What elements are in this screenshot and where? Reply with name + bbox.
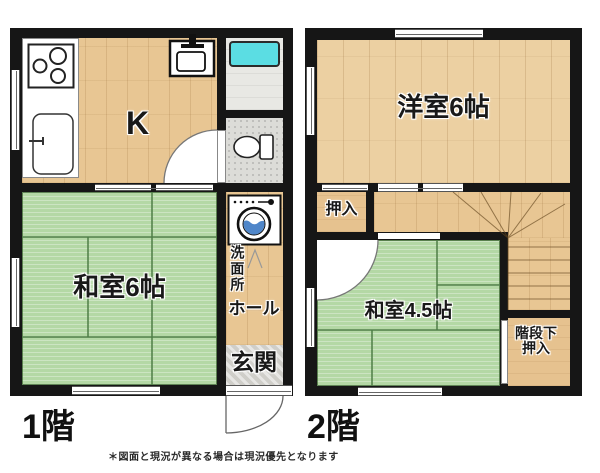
floor1-label: 1階 [22,399,75,448]
floor-plan: K 和室6帖 洗面所 ホール 玄関 [0,0,600,473]
floor1-outline: K 和室6帖 洗面所 ホール 玄関 [10,28,293,396]
senmenjo-label: 洗面所 [229,245,244,293]
genkan-label: 玄関 [222,350,286,375]
kaidanshita-oshiire-label: 階段下 押入 [490,326,582,357]
floor2-label: 2階 [307,399,360,448]
washitsu45-label: 和室4.5帖 [317,300,500,322]
floor2-outline: 洋室6帖 押入 和室4.5帖 階段下 押入 [305,28,582,396]
washitsu6-label: 和室6帖 [22,273,217,302]
yoshitsu-label: 洋室6帖 [317,93,570,122]
kitchen-label: K [126,106,149,141]
floor1-annotations [10,28,293,396]
kaidanshita-line2: 押入 [490,341,582,356]
disclaimer-caption: ＊図面と現況が異なる場合は現況優先となります [108,448,339,463]
hall-label: ホール [222,300,286,319]
entrance-door-swing [216,396,296,438]
oshiire-label: 押入 [317,201,366,219]
